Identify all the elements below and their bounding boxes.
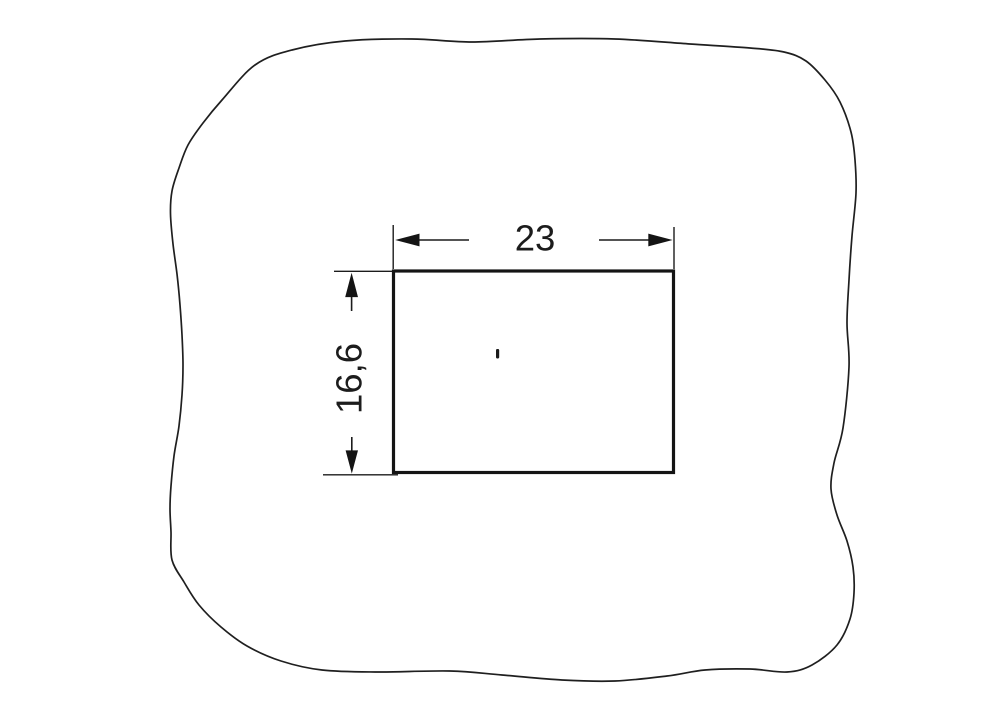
svg-text:16,6: 16,6 (329, 343, 370, 414)
svg-text:23: 23 (515, 218, 556, 259)
